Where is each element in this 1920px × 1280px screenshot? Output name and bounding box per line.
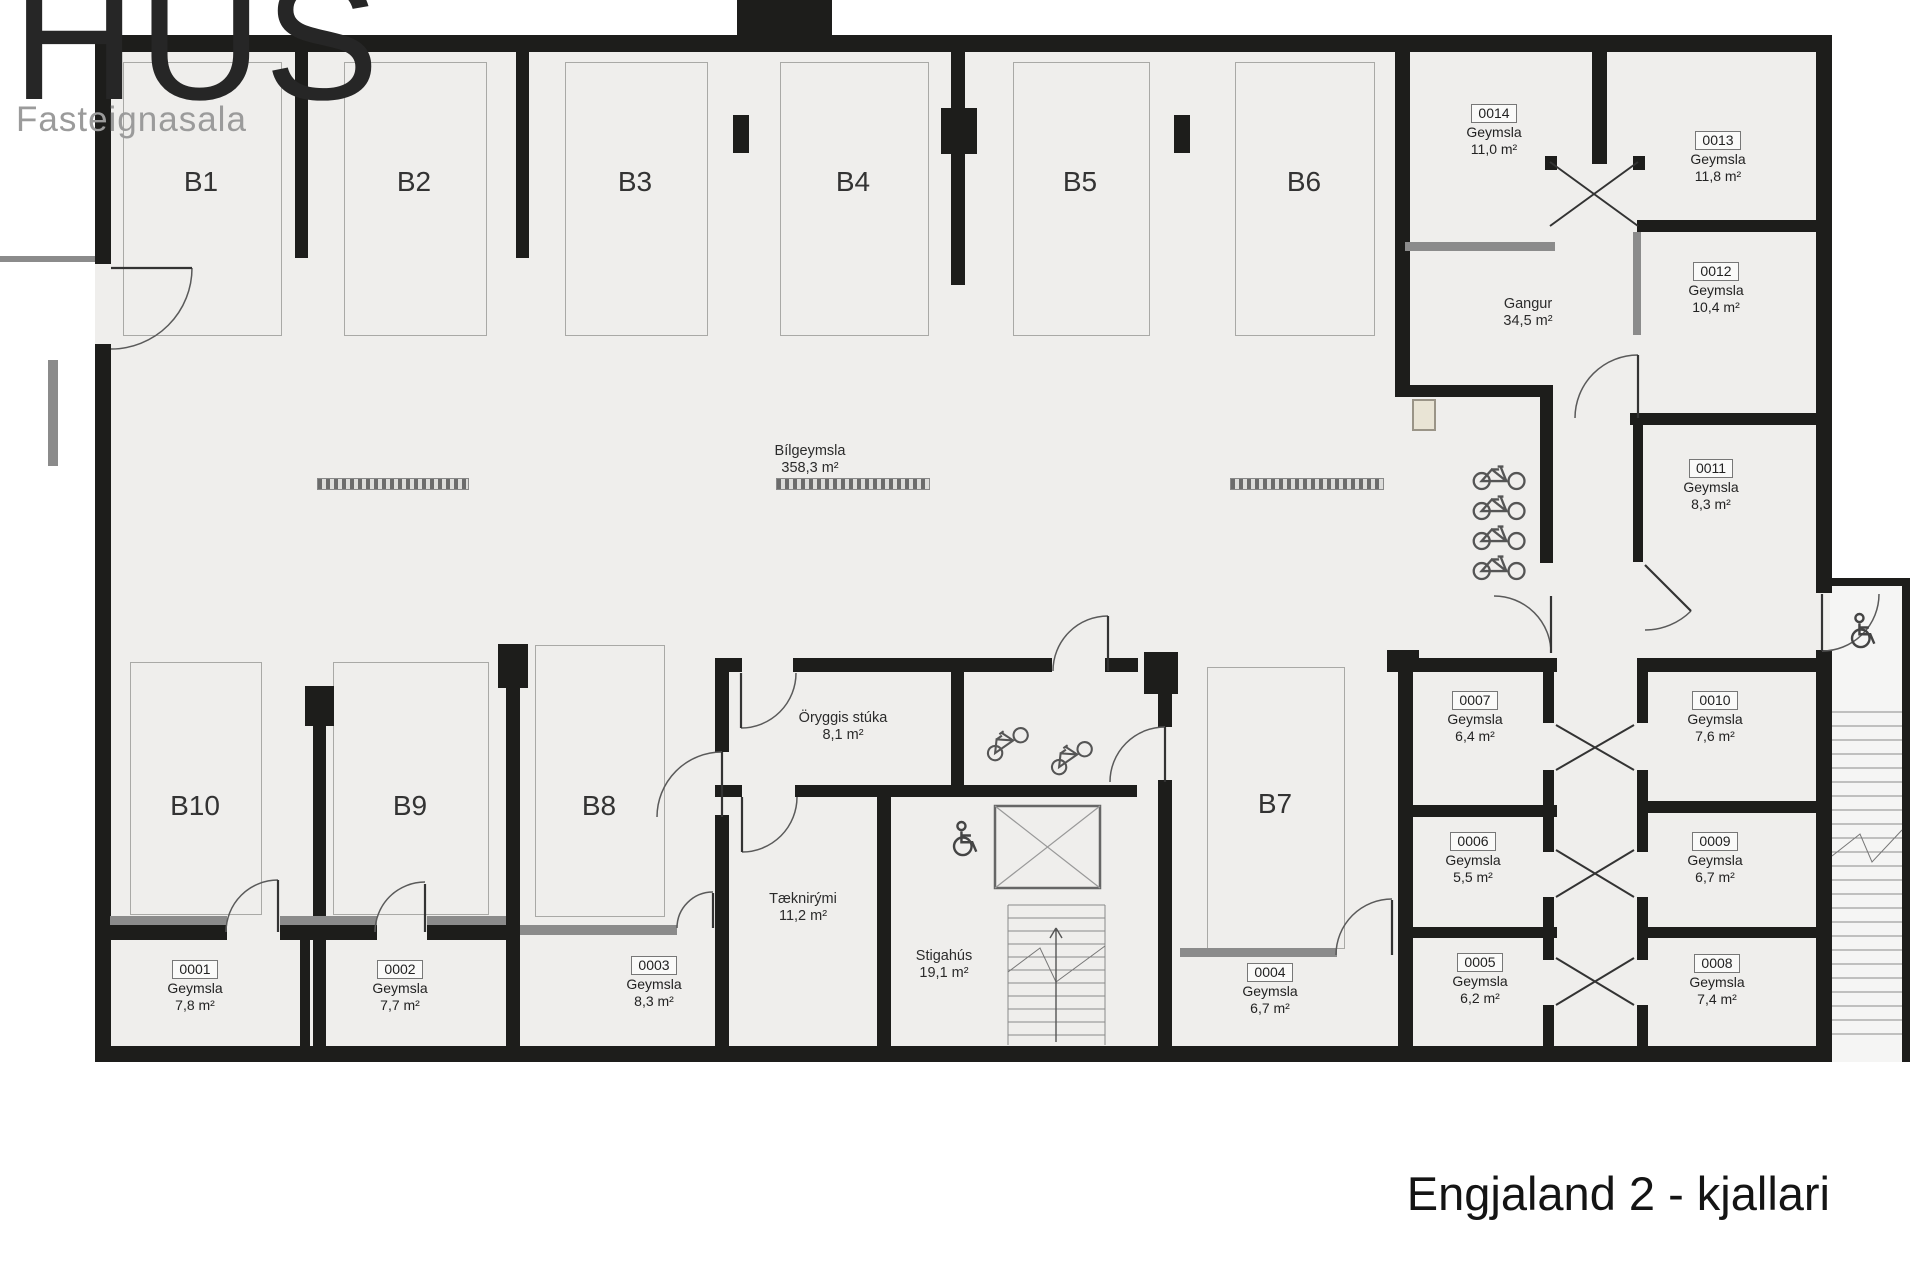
parking-stall [780,62,929,336]
area-label-garage: Bílgeymsla 358,3 m² [750,443,870,477]
wall [1637,220,1816,232]
room-id-badge: 0006 [1450,832,1495,851]
wall [1592,52,1607,164]
room-label-0014: 0014 Geymsla 11,0 m² [1434,104,1554,158]
wall [1902,578,1910,1062]
room-type: Geymsla [1655,711,1775,728]
parking-space-b5-label: B5 [1025,166,1135,198]
wall [1398,650,1413,1062]
wall [1158,658,1172,727]
room-area: 8,3 m² [1651,496,1771,513]
wall [1395,52,1410,397]
wall [941,108,977,154]
room-label-0011: 0011 Geymsla 8,3 m² [1651,459,1771,513]
room-type: Geymsla [1658,151,1778,168]
wall [1816,35,1832,593]
logo-subtitle: Fasteignasala [16,100,247,140]
wall [1637,927,1816,938]
area-size: 34,5 m² [1468,313,1588,330]
wall [280,925,377,940]
wall [1545,156,1557,170]
room-type: Geymsla [340,980,460,997]
wall [1543,672,1554,723]
room-type: Geymsla [135,980,255,997]
room-area: 7,4 m² [1657,991,1777,1008]
room-id-badge: 0010 [1692,691,1737,710]
area-size: 19,1 m² [884,965,1004,982]
wall [951,52,965,285]
wall [520,925,677,935]
wall [95,344,111,1062]
room-type: Geymsla [1415,711,1535,728]
wall [877,797,891,1048]
wall [1407,805,1557,817]
wall [427,925,506,940]
room-area: 11,0 m² [1434,141,1554,158]
area-label-security: Öryggis stúka 8,1 m² [773,710,913,744]
room-label-0003: 0003 Geymsla 8,3 m² [594,956,714,1010]
wall [1630,413,1816,425]
wall [1395,385,1553,397]
area-label-technical: Tæknirými 11,2 m² [743,891,863,925]
parking-space-b1-label: B1 [146,166,256,198]
wall [737,0,832,43]
room-label-0008: 0008 Geymsla 7,4 m² [1657,954,1777,1008]
room-type: Geymsla [1657,974,1777,991]
wall [1105,658,1138,672]
parking-space-b2-label: B2 [359,166,469,198]
floor-plan-page: HÚS Fasteignasala Engjaland 2 - kjallari… [0,0,1920,1280]
wheel-stop [1230,478,1384,490]
wall [1816,650,1832,1062]
wall [1633,156,1645,170]
wall [1637,672,1648,723]
room-area: 6,4 m² [1415,728,1535,745]
room-id-badge: 0002 [377,960,422,979]
wall [1830,578,1904,586]
wall [1633,232,1641,335]
wall [715,658,742,672]
wall [715,672,729,752]
wall [715,815,729,1048]
wall [48,360,58,466]
wall [110,916,227,925]
area-name: Öryggis stúka [773,710,913,727]
wall [1403,927,1557,938]
wall [110,925,227,940]
area-size: 358,3 m² [750,460,870,477]
parking-space-b7-label: B7 [1220,788,1330,820]
area-label-stairwell: Stigahús 19,1 m² [884,948,1004,982]
wall [506,648,520,1048]
plan-title: Engjaland 2 - kjallari [1407,1166,1830,1221]
parking-space-b4-label: B4 [798,166,908,198]
room-type: Geymsla [1420,973,1540,990]
area-name: Bílgeymsla [750,443,870,460]
room-label-0005: 0005 Geymsla 6,2 m² [1420,953,1540,1007]
room-id-badge: 0011 [1689,459,1733,478]
parking-stall [1013,62,1150,336]
room-type: Geymsla [1434,124,1554,141]
room-id-badge: 0014 [1471,104,1516,123]
room-label-0012: 0012 Geymsla 10,4 m² [1656,262,1776,316]
room-id-badge: 0012 [1693,262,1738,281]
parking-stall [130,662,262,915]
room-id-badge: 0001 [172,960,217,979]
wall [1180,948,1337,957]
room-type: Geymsla [1655,852,1775,869]
room-label-0010: 0010 Geymsla 7,6 m² [1655,691,1775,745]
room-id-badge: 0013 [1695,131,1740,150]
parking-stall [1235,62,1375,336]
wall [1637,897,1648,960]
room-area: 7,6 m² [1655,728,1775,745]
room-id-badge: 0003 [631,956,676,975]
wall [1158,780,1172,1048]
room-label-0007: 0007 Geymsla 6,4 m² [1415,691,1535,745]
wall [313,690,326,1048]
wall [95,1046,1832,1062]
wall [715,785,742,797]
wheel-stop [776,478,930,490]
room-id-badge: 0009 [1692,832,1737,851]
area-name: Gangur [1468,296,1588,313]
room-id-badge: 0005 [1457,953,1502,972]
wall [0,256,95,262]
room-label-0001: 0001 Geymsla 7,8 m² [135,960,255,1014]
room-area: 7,8 m² [135,997,255,1014]
room-label-0009: 0009 Geymsla 6,7 m² [1655,832,1775,886]
room-area: 7,7 m² [340,997,460,1014]
area-name: Stigahús [884,948,1004,965]
room-label-0013: 0013 Geymsla 11,8 m² [1658,131,1778,185]
room-area: 6,2 m² [1420,990,1540,1007]
room-type: Geymsla [1656,282,1776,299]
wall [1174,115,1190,153]
room-label-0002: 0002 Geymsla 7,7 m² [340,960,460,1014]
room-area: 6,7 m² [1210,1000,1330,1017]
parking-space-b9-label: B9 [355,790,465,822]
wall [300,938,310,1046]
wall [280,916,377,925]
wall [1543,897,1554,960]
wall [1633,425,1643,562]
room-type: Geymsla [1651,479,1771,496]
wall [795,785,1137,797]
room-id-badge: 0007 [1452,691,1497,710]
room-area: 10,4 m² [1656,299,1776,316]
wall [1543,770,1554,852]
wall [1405,242,1555,251]
wall [1540,385,1553,563]
area-name: Tæknirými [743,891,863,908]
room-type: Geymsla [594,976,714,993]
room-type: Geymsla [1210,983,1330,1000]
room-area: 11,8 m² [1658,168,1778,185]
area-label-corridor: Gangur 34,5 m² [1468,296,1588,330]
parking-space-b3-label: B3 [580,166,690,198]
wall [733,115,749,153]
room-id-badge: 0008 [1694,954,1739,973]
parking-space-b8-label: B8 [544,790,654,822]
parking-space-b6-label: B6 [1249,166,1359,198]
wall [516,52,529,258]
wall [951,672,964,797]
wall [1637,658,1816,672]
wall [1412,399,1436,431]
room-area: 6,7 m² [1655,869,1775,886]
parking-space-b10-label: B10 [140,790,250,822]
wall [1637,1005,1648,1048]
parking-stall [535,645,665,917]
parking-stall [333,662,489,915]
wall [427,916,506,925]
room-type: Geymsla [1413,852,1533,869]
area-size: 8,1 m² [773,727,913,744]
parking-stall [565,62,708,336]
wall [1543,1005,1554,1048]
room-area: 8,3 m² [594,993,714,1010]
room-label-0006: 0006 Geymsla 5,5 m² [1413,832,1533,886]
area-size: 11,2 m² [743,908,863,925]
wall [1637,801,1816,813]
room-area: 5,5 m² [1413,869,1533,886]
room-id-badge: 0004 [1247,963,1292,982]
wheel-stop [317,478,469,490]
exterior-stair-floor [1830,586,1902,1062]
wall [1637,770,1648,852]
wall [1407,658,1557,672]
room-label-0004: 0004 Geymsla 6,7 m² [1210,963,1330,1017]
wall [793,658,1052,672]
